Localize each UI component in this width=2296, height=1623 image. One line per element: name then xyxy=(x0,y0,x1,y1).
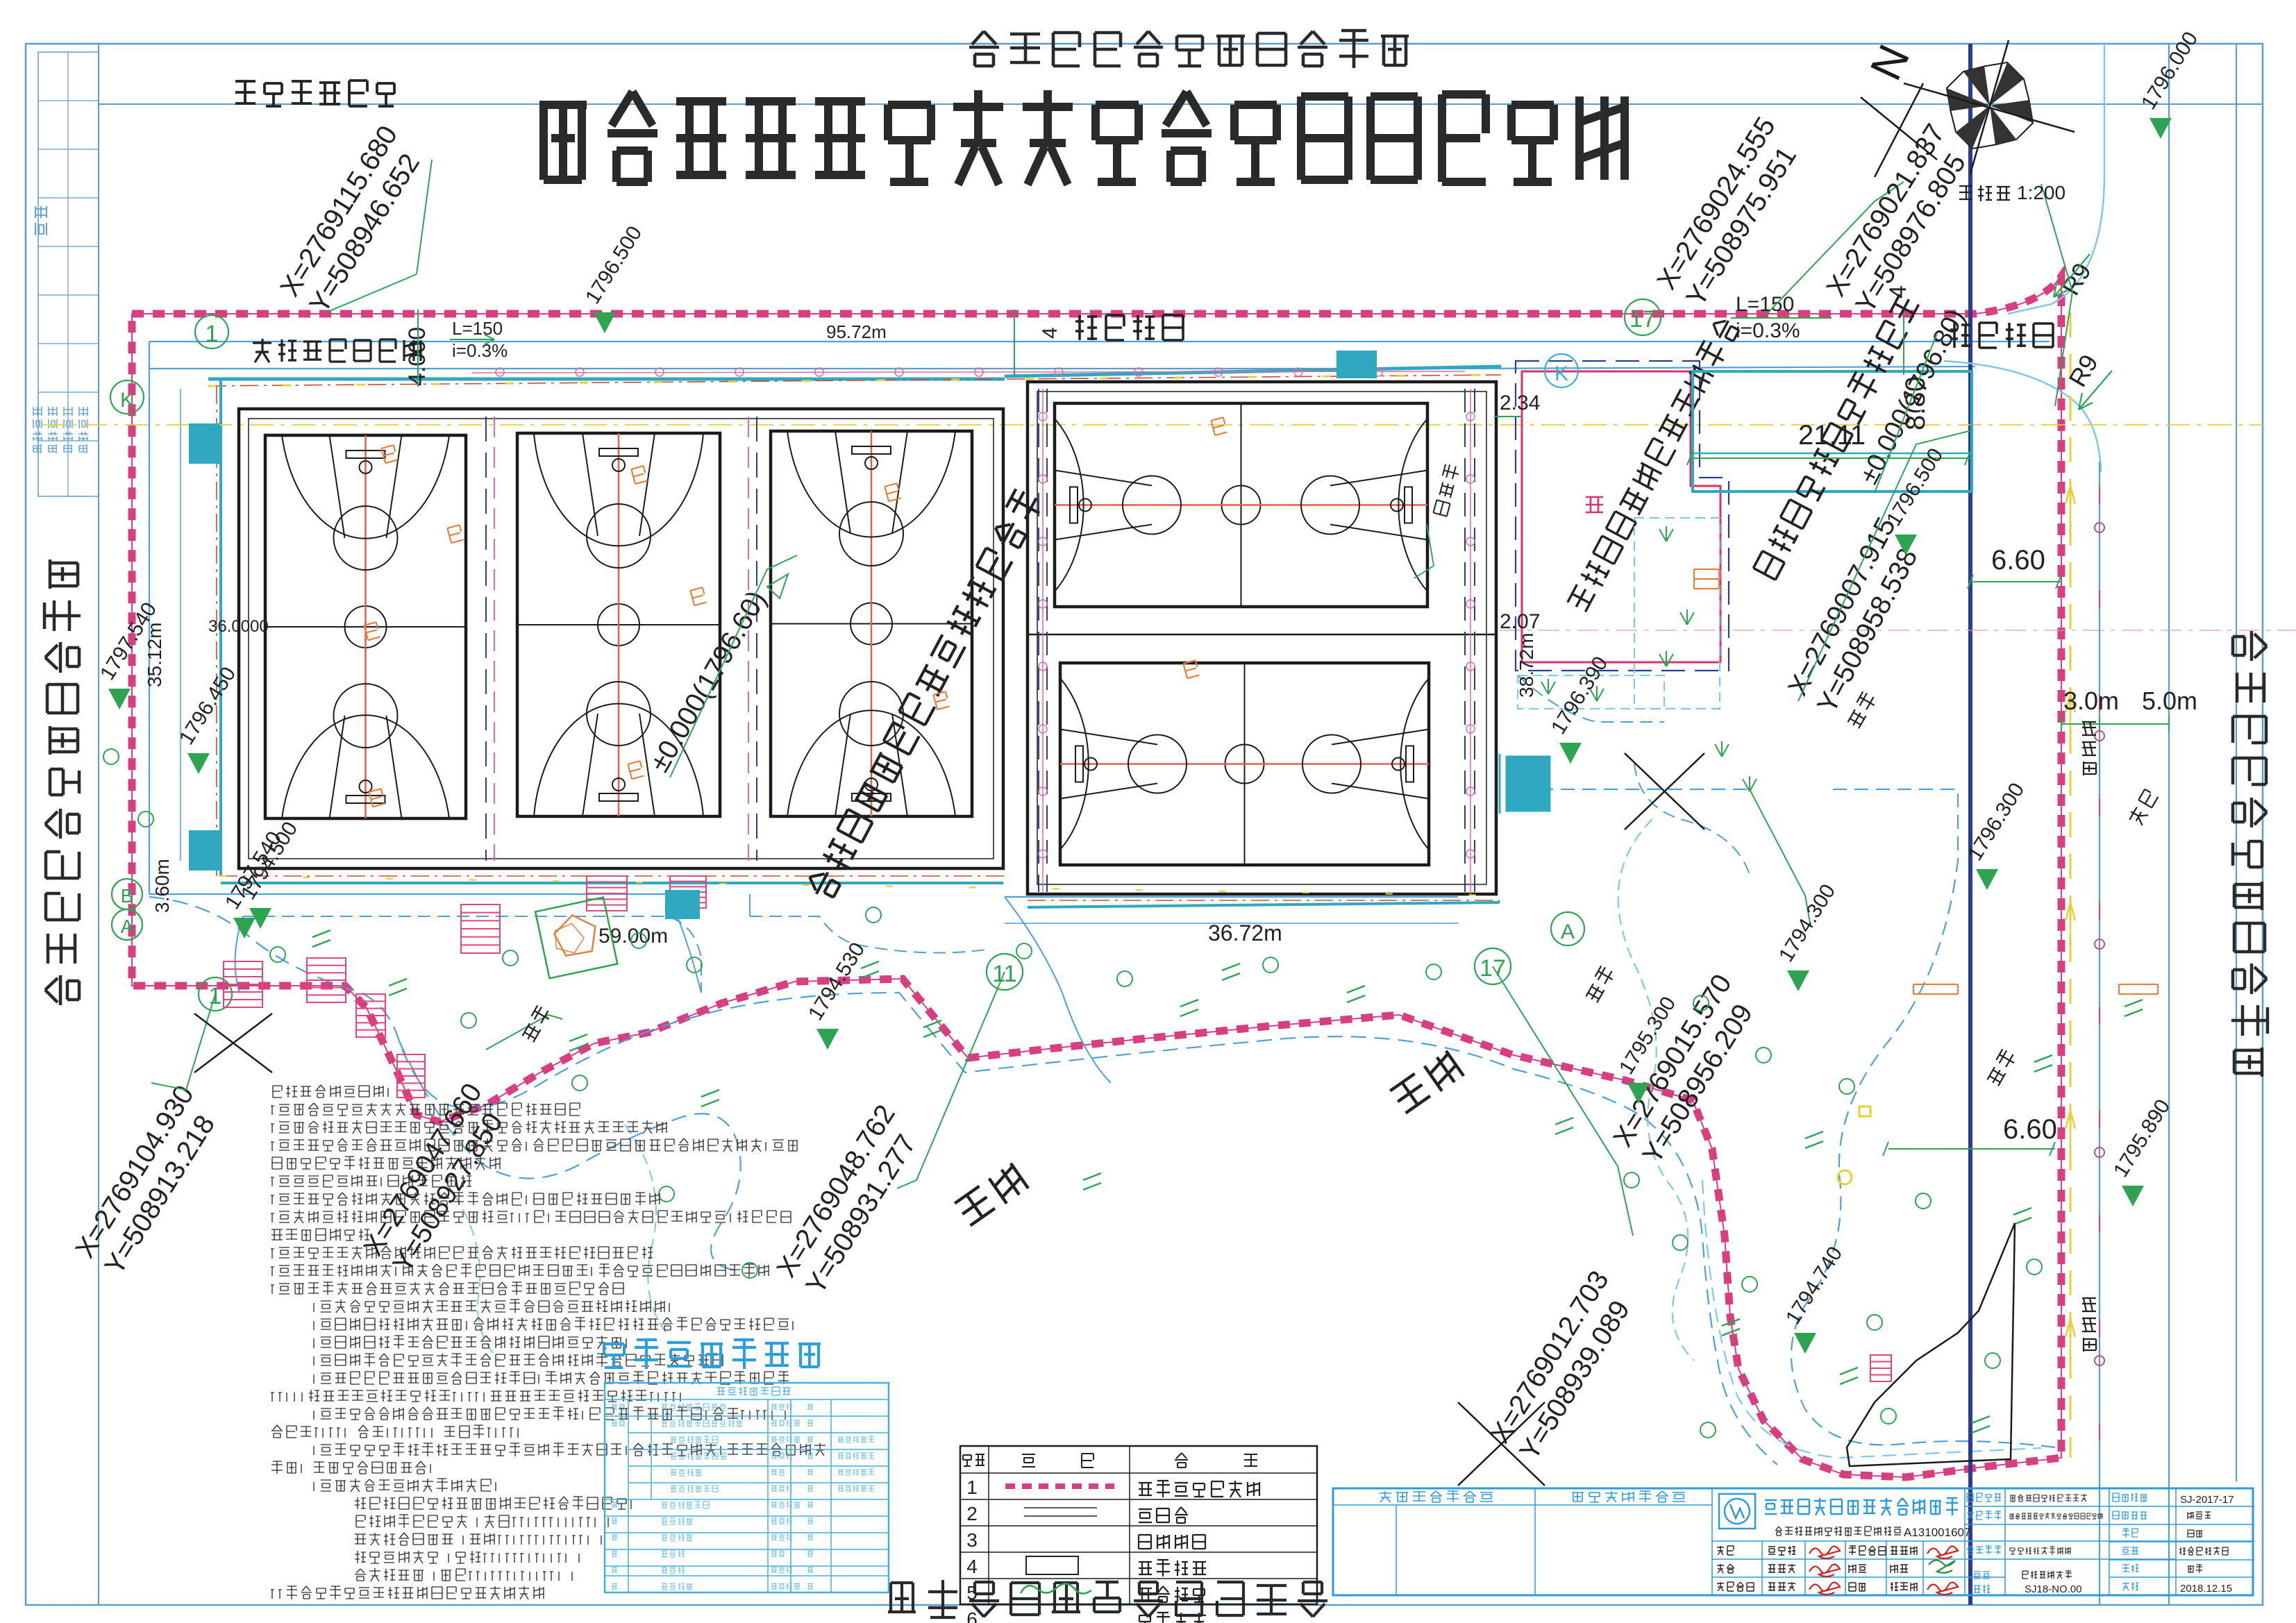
svg-text:K: K xyxy=(1555,362,1568,385)
svg-text:L=150: L=150 xyxy=(452,318,503,339)
svg-text:6: 6 xyxy=(966,1608,978,1623)
svg-text:A: A xyxy=(1561,920,1575,943)
svg-text:i=0.3%: i=0.3% xyxy=(452,340,508,361)
svg-text:6.60: 6.60 xyxy=(2003,1114,2057,1145)
svg-text:SJ-2017-17: SJ-2017-17 xyxy=(2180,1494,2234,1506)
svg-text:A: A xyxy=(121,916,134,937)
svg-text:1: 1 xyxy=(966,1477,978,1498)
svg-text:17: 17 xyxy=(1629,306,1656,333)
svg-text:2: 2 xyxy=(966,1503,978,1524)
svg-text:1:200: 1:200 xyxy=(2017,182,2065,203)
svg-text:4: 4 xyxy=(966,1556,978,1577)
svg-text:6.60: 6.60 xyxy=(1991,545,2045,575)
svg-text:2018.12.15: 2018.12.15 xyxy=(2180,1583,2232,1595)
svg-text:36.72m: 36.72m xyxy=(1208,920,1282,945)
svg-text:3.60m: 3.60m xyxy=(151,859,173,913)
svg-text:i=0.3%: i=0.3% xyxy=(1736,319,1800,342)
svg-text:3: 3 xyxy=(966,1529,978,1551)
svg-text:B: B xyxy=(121,885,134,907)
svg-text:4: 4 xyxy=(1039,327,1062,339)
svg-text:21.11: 21.11 xyxy=(1798,420,1866,451)
svg-text:A131001607: A131001607 xyxy=(1904,1526,1970,1539)
svg-text:SJ18-NO.00: SJ18-NO.00 xyxy=(2025,1583,2082,1595)
svg-text:36.0000: 36.0000 xyxy=(208,617,269,636)
svg-text:1: 1 xyxy=(206,321,219,347)
svg-text:95.72m: 95.72m xyxy=(826,321,887,342)
svg-text:17: 17 xyxy=(1480,955,1506,982)
svg-text:3.0m: 3.0m xyxy=(2063,687,2119,715)
svg-text:11: 11 xyxy=(992,961,1016,987)
svg-text:5.0m: 5.0m xyxy=(2142,687,2197,715)
svg-text:38.72m: 38.72m xyxy=(1516,633,1537,698)
svg-text:L=150: L=150 xyxy=(1736,293,1794,316)
svg-text:2.34: 2.34 xyxy=(1500,392,1540,414)
svg-text:5: 5 xyxy=(966,1582,978,1604)
svg-text:2.07: 2.07 xyxy=(1500,610,1540,633)
svg-text:K: K xyxy=(120,389,134,412)
